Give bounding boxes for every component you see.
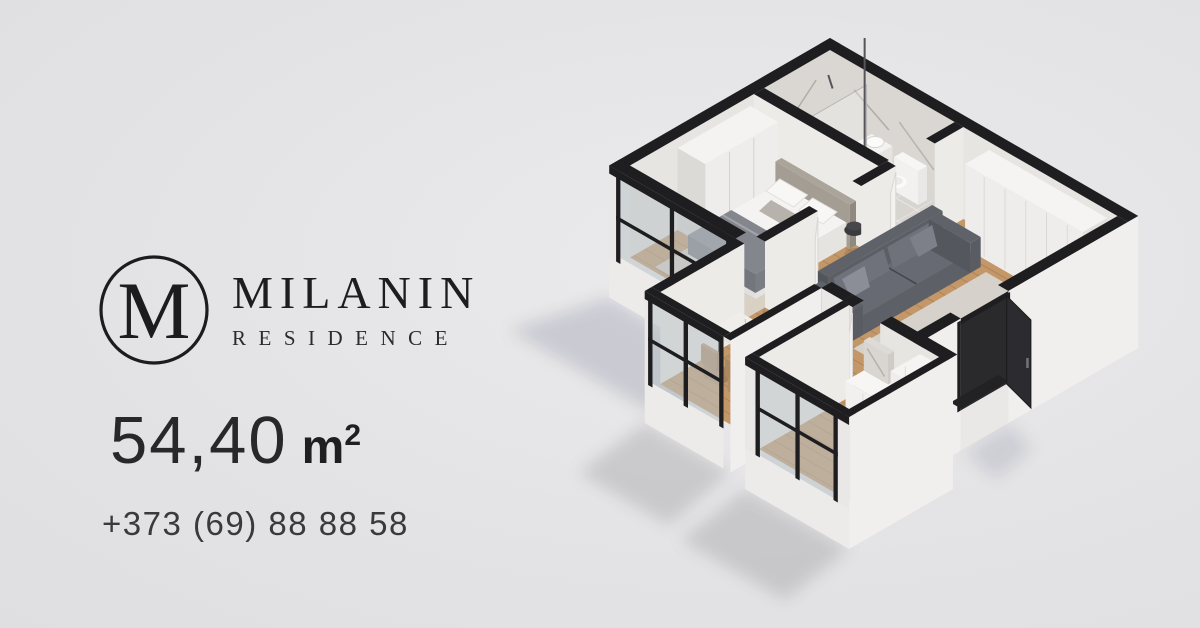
area-value: 54,40m2 [110, 402, 480, 479]
info-panel: M MILANIN RESIDENCE 54,40m2 +373 (69) 88… [96, 252, 480, 543]
brand-name: MILANIN [232, 269, 480, 317]
phone-number: +373 (69) 88 88 58 [102, 505, 480, 543]
area-unit: m2 [302, 421, 361, 474]
banner: { "brand": { "monogram": "M", "name": "M… [0, 0, 1200, 628]
area-number: 54,40 [110, 403, 288, 478]
brand-wordmark: MILANIN RESIDENCE [232, 269, 480, 350]
area-unit-m: m [302, 421, 345, 474]
brand-subtitle: RESIDENCE [232, 326, 480, 351]
brand-logo: M MILANIN RESIDENCE [96, 252, 480, 368]
monogram-letter: M [118, 265, 191, 356]
brand-monogram-icon: M [96, 252, 212, 368]
area-unit-sup: 2 [344, 419, 361, 452]
